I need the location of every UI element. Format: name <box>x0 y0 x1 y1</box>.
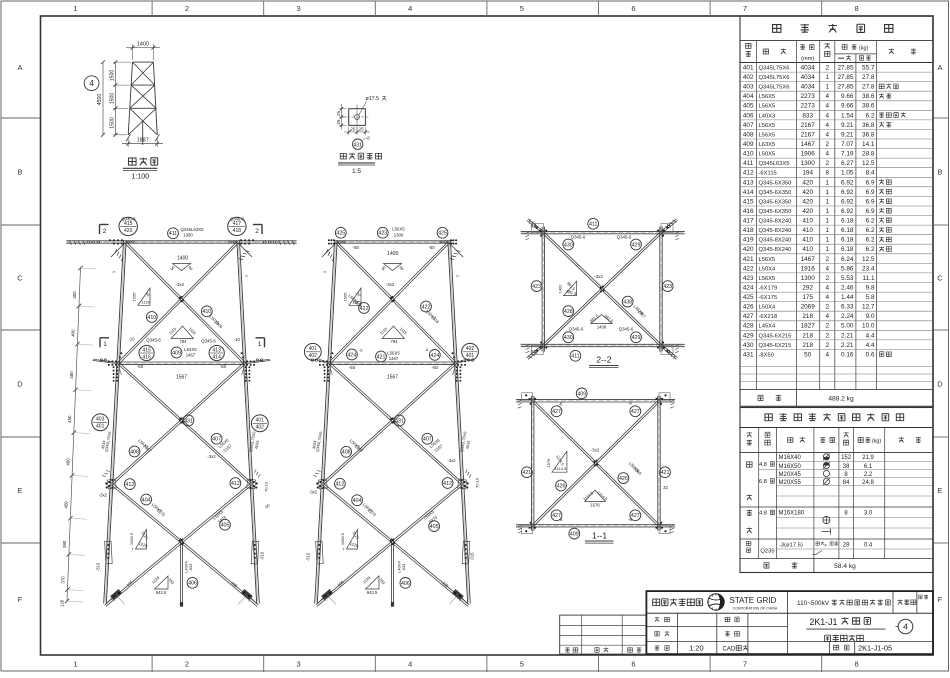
svg-text:488.2 kg: 488.2 kg <box>828 396 854 403</box>
svg-text:431: 431 <box>353 142 362 148</box>
svg-text:4.4: 4.4 <box>866 332 875 339</box>
svg-text:2K1-J1-05: 2K1-J1-05 <box>858 643 892 652</box>
svg-text:428: 428 <box>743 323 754 330</box>
svg-text:1906: 1906 <box>801 151 816 158</box>
svg-text:6.2: 6.2 <box>866 246 875 253</box>
svg-text:Q235: Q235 <box>760 549 774 555</box>
svg-text:-6: -6 <box>628 401 632 406</box>
svg-text:5: 5 <box>520 660 524 669</box>
svg-text:27.8: 27.8 <box>862 84 875 91</box>
svg-text:402: 402 <box>743 74 754 81</box>
svg-text:1: 1 <box>826 84 830 91</box>
svg-text:-3x2: -3x2 <box>591 448 600 453</box>
svg-text:1505: 1505 <box>132 292 137 302</box>
svg-text:2: 2 <box>826 275 830 282</box>
svg-text:423: 423 <box>532 284 541 290</box>
svg-text:1400: 1400 <box>387 251 398 257</box>
svg-text:L50X4: L50X4 <box>759 266 777 272</box>
svg-text:414: 414 <box>743 189 754 196</box>
svg-text:431: 431 <box>184 418 193 424</box>
svg-text:1: 1 <box>258 341 262 348</box>
svg-text:-3x2: -3x2 <box>386 282 395 287</box>
svg-text:C: C <box>17 274 23 283</box>
svg-text:405: 405 <box>743 103 754 110</box>
svg-text:24.8: 24.8 <box>862 480 874 486</box>
svg-text:1576: 1576 <box>546 458 551 468</box>
svg-text:Q345-8: Q345-8 <box>122 217 137 222</box>
svg-text:25: 25 <box>359 127 364 132</box>
svg-text:-11: -11 <box>665 223 671 228</box>
svg-text:420: 420 <box>802 189 813 196</box>
svg-text:-6: -6 <box>559 402 563 407</box>
svg-text:12.5: 12.5 <box>862 160 875 167</box>
svg-text:M16X50: M16X50 <box>779 464 802 470</box>
svg-text:1400: 1400 <box>177 255 188 261</box>
svg-text:427: 427 <box>743 313 754 320</box>
svg-text:6.1: 6.1 <box>864 464 873 470</box>
svg-text:412: 412 <box>443 481 452 487</box>
svg-text:32: 32 <box>663 485 668 490</box>
svg-text:1467: 1467 <box>389 356 399 361</box>
svg-text:833: 833 <box>188 563 193 570</box>
svg-text:Q345-6: Q345-6 <box>569 327 584 332</box>
svg-text:1--1: 1--1 <box>592 531 607 541</box>
svg-text:1: 1 <box>826 74 830 81</box>
svg-text:C: C <box>937 274 943 283</box>
svg-text:Q345-8X240: Q345-8X240 <box>759 219 792 225</box>
svg-text:1: 1 <box>826 218 830 225</box>
svg-text:1114.5: 1114.5 <box>555 466 567 471</box>
svg-text:58.4 kg: 58.4 kg <box>834 563 856 570</box>
svg-text:1500: 1500 <box>110 93 116 105</box>
svg-text:-3x2: -3x2 <box>309 490 318 495</box>
svg-text:2: 2 <box>103 228 107 235</box>
svg-text:-50: -50 <box>432 365 439 370</box>
svg-text:412: 412 <box>231 481 240 487</box>
svg-text:1115: 1115 <box>352 299 361 304</box>
svg-text:425: 425 <box>336 231 345 237</box>
svg-text:6.18: 6.18 <box>841 237 854 244</box>
svg-text:1300: 1300 <box>394 232 404 237</box>
svg-text:8: 8 <box>855 4 859 13</box>
svg-text:38.6: 38.6 <box>862 93 875 100</box>
svg-text:408: 408 <box>743 131 754 138</box>
svg-text:ø17.5: ø17.5 <box>366 96 380 102</box>
svg-text:1408: 1408 <box>597 325 607 330</box>
svg-text:-3x2: -3x2 <box>594 274 603 279</box>
svg-text:Q345-6X350: Q345-6X350 <box>759 190 792 196</box>
svg-text:4: 4 <box>826 93 830 100</box>
svg-text:218: 218 <box>802 332 813 339</box>
svg-text:411: 411 <box>169 231 177 237</box>
svg-text:25: 25 <box>336 119 341 124</box>
svg-text:Q345-6X215: Q345-6X215 <box>759 333 792 339</box>
svg-text:-6X115: -6X115 <box>759 171 777 177</box>
svg-text:427: 427 <box>631 513 640 519</box>
svg-text:411: 411 <box>743 160 754 167</box>
svg-text:-50: -50 <box>428 245 435 250</box>
svg-text:-11: -11 <box>665 349 671 354</box>
svg-text:6.2: 6.2 <box>866 112 875 119</box>
svg-text:6.18: 6.18 <box>841 227 854 234</box>
svg-text:420: 420 <box>743 246 754 253</box>
svg-text:4: 4 <box>89 79 94 88</box>
svg-text:402: 402 <box>466 346 475 352</box>
svg-text:401: 401 <box>256 418 265 424</box>
svg-text:(kg): (kg) <box>872 438 881 444</box>
svg-text:1: 1 <box>826 246 830 253</box>
svg-text:120: 120 <box>60 599 65 607</box>
svg-text:424: 424 <box>430 353 439 359</box>
svg-text:Q345-6: Q345-6 <box>201 338 216 343</box>
svg-text:4: 4 <box>826 294 830 301</box>
svg-text:1: 1 <box>826 227 830 234</box>
svg-text:2--2: 2--2 <box>596 355 611 365</box>
svg-text:8: 8 <box>855 660 859 669</box>
svg-text:425: 425 <box>743 294 754 301</box>
svg-text:A: A <box>17 63 22 72</box>
svg-text:12.5: 12.5 <box>862 256 875 263</box>
svg-text:5.86: 5.86 <box>841 265 854 272</box>
svg-text:1: 1 <box>826 237 830 244</box>
svg-text:B: B <box>937 168 942 177</box>
svg-text:Q345-6X350: Q345-6X350 <box>759 199 792 205</box>
svg-text:450: 450 <box>67 415 72 423</box>
svg-text:407: 407 <box>212 437 221 443</box>
svg-text:Q345-6: Q345-6 <box>617 235 632 240</box>
svg-text:36.8: 36.8 <box>862 131 875 138</box>
svg-text:B: B <box>17 168 22 177</box>
svg-text:411: 411 <box>571 354 579 360</box>
svg-text:1300: 1300 <box>801 160 816 167</box>
svg-text:4034: 4034 <box>801 74 816 81</box>
svg-text:Q345-6: Q345-6 <box>146 337 161 342</box>
svg-text:8: 8 <box>826 170 830 177</box>
svg-text:2.46: 2.46 <box>841 285 854 292</box>
svg-text:1.05: 1.05 <box>841 170 854 177</box>
svg-text:6.92: 6.92 <box>841 189 854 196</box>
svg-text:784: 784 <box>180 339 188 344</box>
svg-text:427: 427 <box>631 409 640 415</box>
svg-text:409: 409 <box>577 391 586 397</box>
svg-text:L56X5: L56X5 <box>392 227 405 232</box>
svg-text:50: 50 <box>804 351 812 358</box>
svg-text:CORPORATION OF CHINA: CORPORATION OF CHINA <box>733 606 778 610</box>
svg-text:403: 403 <box>96 417 105 423</box>
svg-text:401: 401 <box>309 346 318 352</box>
svg-text:10.0: 10.0 <box>862 323 875 330</box>
svg-text:-3(ø17.5): -3(ø17.5) <box>779 543 803 549</box>
svg-text:431: 431 <box>395 418 404 424</box>
svg-text:425: 425 <box>438 231 447 237</box>
svg-text:409: 409 <box>172 350 181 356</box>
svg-text:8.4: 8.4 <box>866 170 875 177</box>
svg-text:431: 431 <box>743 351 754 358</box>
svg-text:438: 438 <box>623 300 632 306</box>
svg-text:4: 4 <box>826 112 830 119</box>
svg-text:6.24: 6.24 <box>841 256 854 263</box>
svg-text:-510: -510 <box>96 562 101 571</box>
svg-text:412: 412 <box>335 482 344 488</box>
svg-text:1:20: 1:20 <box>689 644 704 653</box>
svg-text:-10: -10 <box>234 337 241 342</box>
svg-text:409: 409 <box>570 532 579 538</box>
svg-text:415: 415 <box>743 198 754 205</box>
svg-text:6.2: 6.2 <box>866 237 875 244</box>
svg-text:Q345L75X6: Q345L75X6 <box>759 66 790 72</box>
svg-text:370: 370 <box>61 576 66 584</box>
svg-text:6.9: 6.9 <box>866 208 875 215</box>
svg-text:426: 426 <box>619 476 628 482</box>
svg-text:423: 423 <box>663 284 672 290</box>
svg-text:424: 424 <box>743 285 754 292</box>
svg-text:L50X5: L50X5 <box>759 152 776 158</box>
svg-text:4: 4 <box>903 622 908 632</box>
svg-text:4500: 4500 <box>97 94 103 106</box>
svg-text:7.19: 7.19 <box>841 151 854 158</box>
svg-text:410: 410 <box>802 218 813 225</box>
svg-text:1500: 1500 <box>110 117 116 129</box>
svg-text:9.0: 9.0 <box>866 313 875 320</box>
svg-text:2.21: 2.21 <box>841 332 854 339</box>
svg-text:Q345L75X6: Q345L75X6 <box>759 75 790 81</box>
svg-text:Q345-6: Q345-6 <box>571 235 586 240</box>
svg-text:9.21: 9.21 <box>841 131 854 138</box>
svg-text:426: 426 <box>557 483 566 489</box>
svg-text:1576: 1576 <box>590 502 600 507</box>
svg-text:416: 416 <box>743 208 754 215</box>
svg-text:110~500kV: 110~500kV <box>797 600 830 607</box>
svg-text:M16X180: M16X180 <box>779 511 805 517</box>
svg-text:1: 1 <box>826 189 830 196</box>
svg-text:14.1: 14.1 <box>862 141 875 148</box>
svg-text:2: 2 <box>826 332 830 339</box>
svg-text:-3x2: -3x2 <box>99 492 108 497</box>
svg-text:36.8: 36.8 <box>862 122 875 129</box>
svg-text:M16X40: M16X40 <box>779 455 802 461</box>
svg-text:2273: 2273 <box>801 103 816 110</box>
svg-text:25: 25 <box>336 111 341 116</box>
svg-text:9.8: 9.8 <box>866 285 875 292</box>
svg-text:-510: -510 <box>260 551 265 560</box>
svg-text:943.5: 943.5 <box>156 590 167 595</box>
svg-text:6.92: 6.92 <box>841 179 854 186</box>
svg-text:1505: 1505 <box>343 292 348 302</box>
svg-text:015: 015 <box>470 552 475 560</box>
svg-text:833: 833 <box>401 563 406 570</box>
svg-text:25: 25 <box>350 127 355 132</box>
svg-text:D: D <box>17 380 23 389</box>
svg-text:L56X5: L56X5 <box>759 276 776 282</box>
svg-text:-6: -6 <box>559 517 563 522</box>
svg-text:-6X218: -6X218 <box>759 314 778 320</box>
svg-text:4: 4 <box>826 131 830 138</box>
svg-text:2: 2 <box>826 141 830 148</box>
svg-text:450: 450 <box>66 458 71 466</box>
svg-text:1887: 1887 <box>137 138 149 144</box>
svg-text:406: 406 <box>401 581 410 587</box>
svg-text:L50X4: L50X4 <box>759 305 777 311</box>
svg-text:1916: 1916 <box>801 265 816 272</box>
svg-text:4: 4 <box>408 4 412 13</box>
svg-text:2: 2 <box>826 323 830 330</box>
svg-text:6.9: 6.9 <box>866 179 875 186</box>
svg-text:6.27: 6.27 <box>841 160 854 167</box>
svg-text:1567: 1567 <box>176 374 187 380</box>
svg-text:410: 410 <box>802 246 813 253</box>
svg-text:784: 784 <box>391 339 399 344</box>
svg-text:4: 4 <box>826 265 830 272</box>
svg-text:429: 429 <box>632 335 641 341</box>
svg-text:402: 402 <box>309 353 318 359</box>
svg-text:Q345-8X240: Q345-8X240 <box>759 238 792 244</box>
svg-text:21.9: 21.9 <box>862 455 874 461</box>
svg-text:2069: 2069 <box>801 304 816 311</box>
svg-text:400: 400 <box>71 329 76 337</box>
svg-text:F: F <box>938 595 943 604</box>
svg-text:4.8: 4.8 <box>759 462 767 468</box>
svg-text:410: 410 <box>202 309 211 315</box>
svg-text:418: 418 <box>233 228 242 234</box>
svg-text:408: 408 <box>342 450 351 456</box>
svg-text:422: 422 <box>360 306 369 312</box>
svg-text:1567: 1567 <box>387 374 398 380</box>
svg-text:218: 218 <box>802 342 813 349</box>
svg-text:2273: 2273 <box>801 93 816 100</box>
svg-text:F: F <box>18 595 23 604</box>
svg-text:2K1-J1: 2K1-J1 <box>810 617 838 627</box>
svg-text:5: 5 <box>520 4 524 13</box>
svg-text:27.85: 27.85 <box>838 74 854 81</box>
svg-text:6.18: 6.18 <box>841 218 854 225</box>
svg-text:-10: -10 <box>530 349 537 354</box>
svg-text:943.5: 943.5 <box>367 590 378 595</box>
svg-text:429: 429 <box>632 242 641 248</box>
svg-text:5.53: 5.53 <box>841 275 854 282</box>
svg-text:38.6: 38.6 <box>862 103 875 110</box>
svg-text:429: 429 <box>743 332 754 339</box>
svg-text:STATE GRID: STATE GRID <box>730 596 777 605</box>
svg-text:2: 2 <box>826 342 830 349</box>
svg-text:Q345-8: Q345-8 <box>230 217 245 222</box>
svg-text:-10: -10 <box>128 336 135 341</box>
svg-text:405: 405 <box>430 524 439 530</box>
svg-text:1: 1 <box>826 179 830 186</box>
svg-text:1402: 1402 <box>558 284 563 294</box>
svg-text:E: E <box>17 486 22 495</box>
svg-text:428: 428 <box>564 309 573 315</box>
svg-text:-50: -50 <box>349 365 356 370</box>
svg-text:408: 408 <box>130 449 139 455</box>
svg-text:0.16: 0.16 <box>841 351 854 358</box>
svg-text:9.66: 9.66 <box>841 93 854 100</box>
svg-text:7: 7 <box>743 4 747 13</box>
svg-text:L45X4: L45X4 <box>759 324 777 330</box>
svg-text:450: 450 <box>64 501 69 509</box>
svg-text:4: 4 <box>826 285 830 292</box>
svg-text:70.10: 70.10 <box>264 481 269 492</box>
svg-text:1115: 1115 <box>141 299 150 304</box>
svg-text:6.92: 6.92 <box>841 198 854 205</box>
svg-text:411: 411 <box>589 222 597 228</box>
svg-text:4: 4 <box>826 103 830 110</box>
svg-text:1584.5: 1584.5 <box>129 532 134 545</box>
svg-text:6.18: 6.18 <box>841 246 854 253</box>
svg-text:412: 412 <box>743 170 754 177</box>
svg-text:2: 2 <box>185 4 189 13</box>
svg-text:L63X5: L63X5 <box>184 347 197 352</box>
svg-text:406: 406 <box>743 112 754 119</box>
svg-text:D: D <box>937 380 943 389</box>
svg-text:(mm): (mm) <box>801 56 814 62</box>
svg-text:CAD: CAD <box>723 646 736 652</box>
svg-text:-6: -6 <box>628 517 632 522</box>
svg-text:-3x2: -3x2 <box>207 454 216 459</box>
svg-text:406: 406 <box>188 581 197 587</box>
svg-text:9.66: 9.66 <box>841 103 854 110</box>
svg-text:410: 410 <box>802 227 813 234</box>
svg-text:415: 415 <box>142 347 151 353</box>
svg-text:412: 412 <box>125 482 134 488</box>
svg-text:407: 407 <box>423 437 432 443</box>
svg-text:-8X50: -8X50 <box>759 352 774 358</box>
svg-text:L56X5: L56X5 <box>759 94 776 100</box>
svg-text:218: 218 <box>802 313 813 320</box>
svg-text:2.21: 2.21 <box>841 342 854 349</box>
svg-text:11.1: 11.1 <box>863 275 875 282</box>
svg-text:27.85: 27.85 <box>838 84 854 91</box>
svg-text:1:5: 1:5 <box>352 168 361 175</box>
svg-text:Q345L63X5: Q345L63X5 <box>181 227 205 232</box>
svg-text:1: 1 <box>103 341 107 348</box>
svg-text:4.4: 4.4 <box>866 342 875 349</box>
svg-text:7: 7 <box>743 660 747 669</box>
svg-text:424: 424 <box>347 352 356 358</box>
svg-text:5.8: 5.8 <box>866 294 875 301</box>
svg-text:2: 2 <box>826 304 830 311</box>
svg-text:Q345L63X5: Q345L63X5 <box>759 161 790 167</box>
svg-text:4034: 4034 <box>801 84 816 91</box>
svg-text:1400: 1400 <box>137 42 149 48</box>
svg-text:420: 420 <box>802 179 813 186</box>
svg-text:415: 415 <box>124 221 133 227</box>
svg-text:421: 421 <box>661 470 670 476</box>
svg-text:1300: 1300 <box>183 233 193 238</box>
svg-text:420: 420 <box>802 198 813 205</box>
svg-text:L56X5: L56X5 <box>759 123 776 129</box>
svg-text:420: 420 <box>802 208 813 215</box>
svg-text:407: 407 <box>743 122 754 129</box>
svg-text:-50: -50 <box>137 364 144 369</box>
svg-text:7.07: 7.07 <box>841 141 854 148</box>
svg-text:6.2: 6.2 <box>866 227 875 234</box>
svg-text:70.10: 70.10 <box>475 477 480 488</box>
svg-text:6.92: 6.92 <box>841 208 854 215</box>
svg-text:1584.5: 1584.5 <box>340 532 345 545</box>
svg-text:4: 4 <box>826 351 830 358</box>
svg-text:401: 401 <box>743 65 754 72</box>
svg-text:Q345-6: Q345-6 <box>619 327 634 332</box>
svg-text:410: 410 <box>147 315 156 321</box>
svg-text:L56X5: L56X5 <box>387 350 400 355</box>
svg-text:-50: -50 <box>220 364 227 369</box>
svg-text:(kg): (kg) <box>859 45 868 51</box>
svg-text:-510: -510 <box>306 552 311 561</box>
svg-text:1.44: 1.44 <box>841 294 854 301</box>
svg-text:419: 419 <box>743 237 754 244</box>
svg-text:6.9: 6.9 <box>866 189 875 196</box>
svg-text:3.0: 3.0 <box>864 511 873 517</box>
